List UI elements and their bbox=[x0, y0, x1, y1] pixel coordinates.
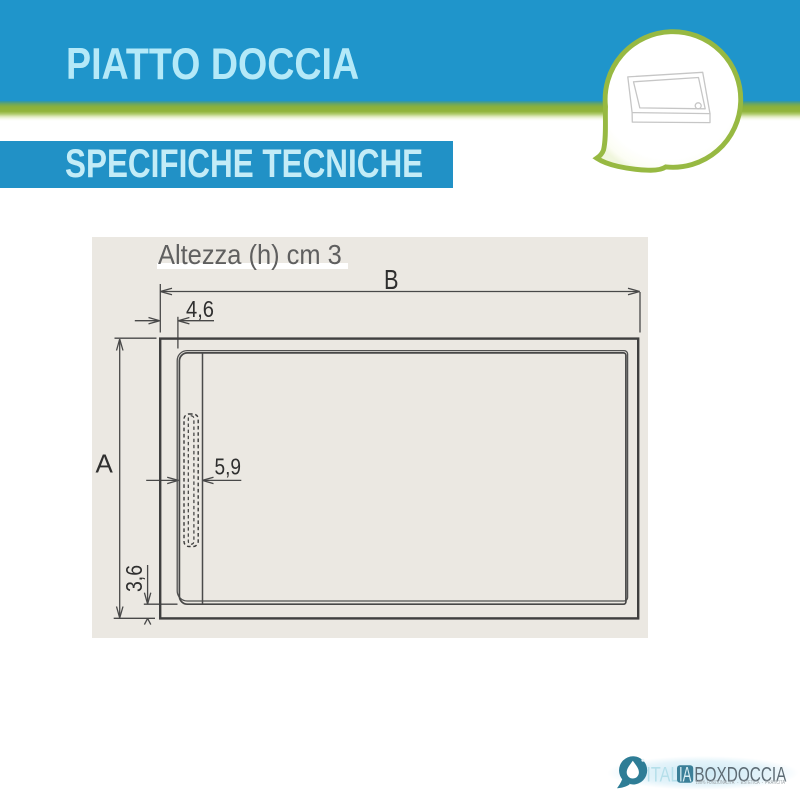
svg-text:5,9: 5,9 bbox=[215, 454, 242, 480]
svg-text:ITAL: ITAL bbox=[646, 763, 679, 787]
svg-text:100% FUNZIONALITA' - ESTETIC: 100% FUNZIONALITA' - ESTETICA - PRATICIT… bbox=[696, 780, 786, 786]
svg-text:A: A bbox=[96, 449, 114, 479]
svg-text:IA: IA bbox=[679, 763, 692, 787]
svg-text:4,6: 4,6 bbox=[186, 296, 214, 322]
svg-text:3,6: 3,6 bbox=[121, 565, 147, 592]
svg-text:B: B bbox=[384, 264, 399, 295]
